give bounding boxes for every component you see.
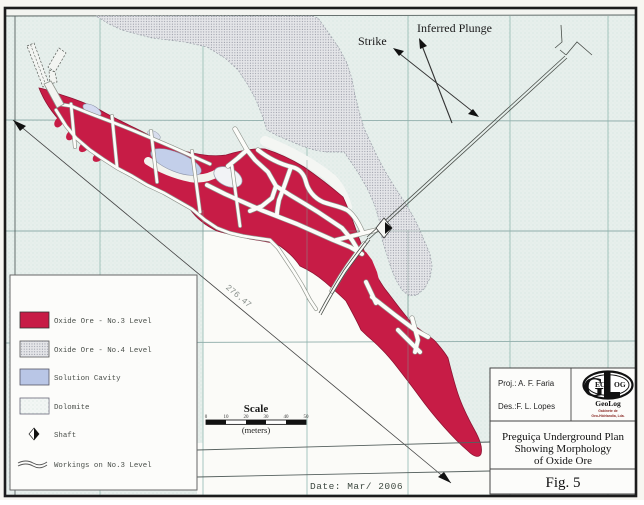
svg-text:GeoLog: GeoLog: [595, 399, 621, 408]
svg-text:Strike: Strike: [358, 34, 387, 48]
svg-text:10: 10: [224, 415, 230, 420]
svg-text:50: 50: [304, 415, 310, 420]
svg-text:30: 30: [264, 415, 270, 420]
svg-text:Oxide Ore - No.3 Level: Oxide Ore - No.3 Level: [54, 318, 152, 326]
svg-text:Oxide Ore - No.4 Level: Oxide Ore - No.4 Level: [54, 347, 152, 355]
svg-text:Des.:F. L. Lopes: Des.:F. L. Lopes: [498, 402, 555, 411]
svg-text:20: 20: [244, 415, 250, 420]
svg-text:Geo-Hidrlandia, Lda.: Geo-Hidrlandia, Lda.: [591, 414, 624, 418]
svg-text:OG: OG: [614, 380, 626, 389]
svg-text:EC: EC: [595, 380, 605, 389]
svg-text:Date: Mar/ 2006: Date: Mar/ 2006: [310, 481, 403, 492]
svg-text:Showing Morphology: Showing Morphology: [515, 443, 612, 455]
svg-text:Fig. 5: Fig. 5: [545, 475, 580, 491]
svg-text:Scale: Scale: [244, 403, 269, 415]
svg-text:of Oxide Ore: of Oxide Ore: [534, 455, 592, 467]
svg-text:Preguiça Underground Plan: Preguiça Underground Plan: [502, 431, 624, 443]
svg-text:Inferred Plunge: Inferred Plunge: [417, 21, 492, 35]
svg-text:Workings on No.3 Level: Workings on No.3 Level: [54, 462, 152, 470]
svg-text:Shaft: Shaft: [54, 432, 76, 440]
svg-text:Solution Cavity: Solution Cavity: [54, 375, 121, 383]
svg-text:Dolomite: Dolomite: [54, 404, 89, 412]
svg-text:(meters): (meters): [242, 425, 270, 435]
svg-text:Gabinete de: Gabinete de: [598, 409, 618, 413]
svg-text:Proj.: A. F. Faria: Proj.: A. F. Faria: [498, 379, 555, 388]
svg-text:40: 40: [284, 415, 290, 420]
